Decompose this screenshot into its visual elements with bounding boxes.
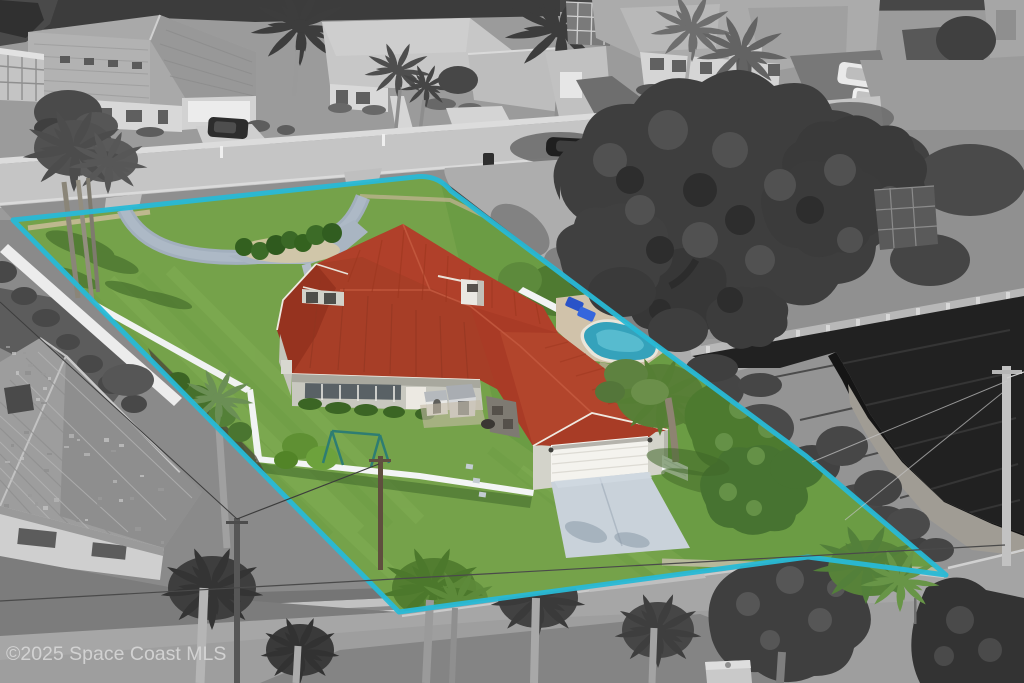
svg-text:©2025 Space Coast MLS: ©2025 Space Coast MLS: [6, 643, 226, 665]
